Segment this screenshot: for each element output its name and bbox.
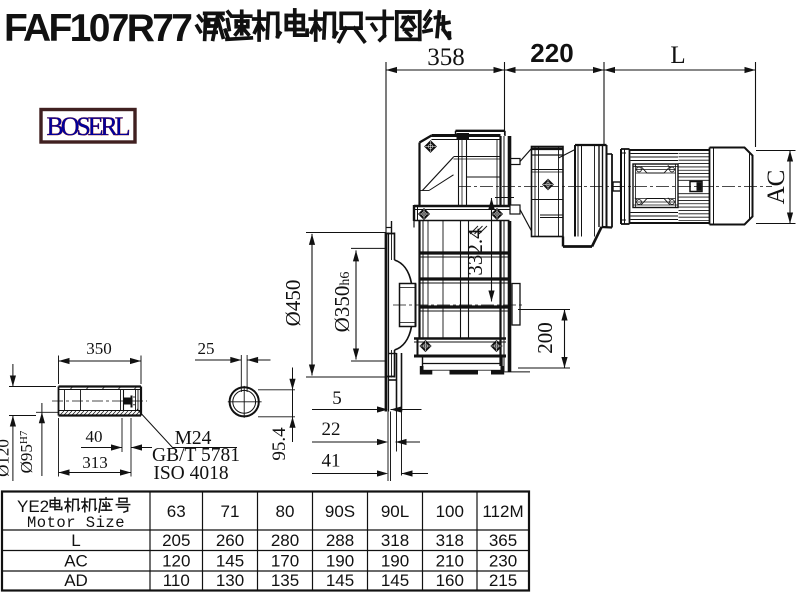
svg-text:288: 288 bbox=[326, 531, 354, 550]
svg-text:25: 25 bbox=[198, 339, 215, 358]
svg-text:Ø450: Ø450 bbox=[281, 280, 305, 327]
svg-text:280: 280 bbox=[271, 531, 299, 550]
svg-text:210: 210 bbox=[436, 552, 464, 571]
svg-text:100: 100 bbox=[436, 502, 464, 521]
svg-text:63: 63 bbox=[167, 502, 186, 521]
svg-text:AC: AC bbox=[64, 552, 88, 571]
svg-text:90S: 90S bbox=[325, 502, 355, 521]
svg-text:145: 145 bbox=[216, 552, 244, 571]
svg-text:350: 350 bbox=[86, 339, 112, 358]
svg-text:112M: 112M bbox=[482, 502, 523, 521]
svg-text:Ø120: Ø120 bbox=[0, 439, 13, 477]
svg-text:Motor Size: Motor Size bbox=[27, 514, 125, 532]
svg-text:358: 358 bbox=[427, 44, 465, 71]
svg-text:41: 41 bbox=[322, 451, 341, 472]
svg-text:95.4: 95.4 bbox=[269, 427, 290, 461]
svg-text:160: 160 bbox=[436, 571, 464, 590]
svg-text:FAF107R77: FAF107R77 bbox=[4, 7, 193, 50]
svg-text:220: 220 bbox=[530, 38, 573, 68]
svg-text:L: L bbox=[670, 42, 685, 69]
svg-text:AD: AD bbox=[64, 571, 88, 590]
svg-text:205: 205 bbox=[162, 531, 190, 550]
svg-text:ISO 4018: ISO 4018 bbox=[153, 463, 228, 484]
svg-text:22: 22 bbox=[322, 419, 341, 440]
svg-text:365: 365 bbox=[489, 531, 517, 550]
svg-text:L: L bbox=[71, 531, 80, 550]
svg-text:90L: 90L bbox=[381, 502, 409, 521]
svg-text:71: 71 bbox=[221, 502, 240, 521]
svg-text:313: 313 bbox=[82, 453, 108, 472]
svg-text:190: 190 bbox=[326, 552, 354, 571]
svg-text:110: 110 bbox=[163, 571, 190, 590]
svg-text:230: 230 bbox=[489, 552, 517, 571]
svg-text:40: 40 bbox=[86, 427, 103, 446]
svg-text:5: 5 bbox=[332, 388, 342, 409]
svg-text:AC: AC bbox=[763, 170, 790, 205]
svg-text:215: 215 bbox=[489, 571, 517, 590]
svg-text:318: 318 bbox=[436, 531, 464, 550]
svg-text:120: 120 bbox=[162, 552, 190, 571]
svg-text:190: 190 bbox=[381, 552, 409, 571]
svg-text:145: 145 bbox=[326, 571, 354, 590]
svg-text:318: 318 bbox=[381, 531, 409, 550]
svg-text:170: 170 bbox=[271, 552, 299, 571]
svg-text:332.4: 332.4 bbox=[463, 228, 487, 276]
svg-text:BOSERL: BOSERL bbox=[47, 112, 131, 141]
svg-text:200: 200 bbox=[533, 322, 557, 354]
svg-text:260: 260 bbox=[216, 531, 244, 550]
svg-text:130: 130 bbox=[216, 571, 244, 590]
svg-text:145: 145 bbox=[381, 571, 409, 590]
svg-text:80: 80 bbox=[276, 502, 295, 521]
svg-text:135: 135 bbox=[271, 571, 299, 590]
